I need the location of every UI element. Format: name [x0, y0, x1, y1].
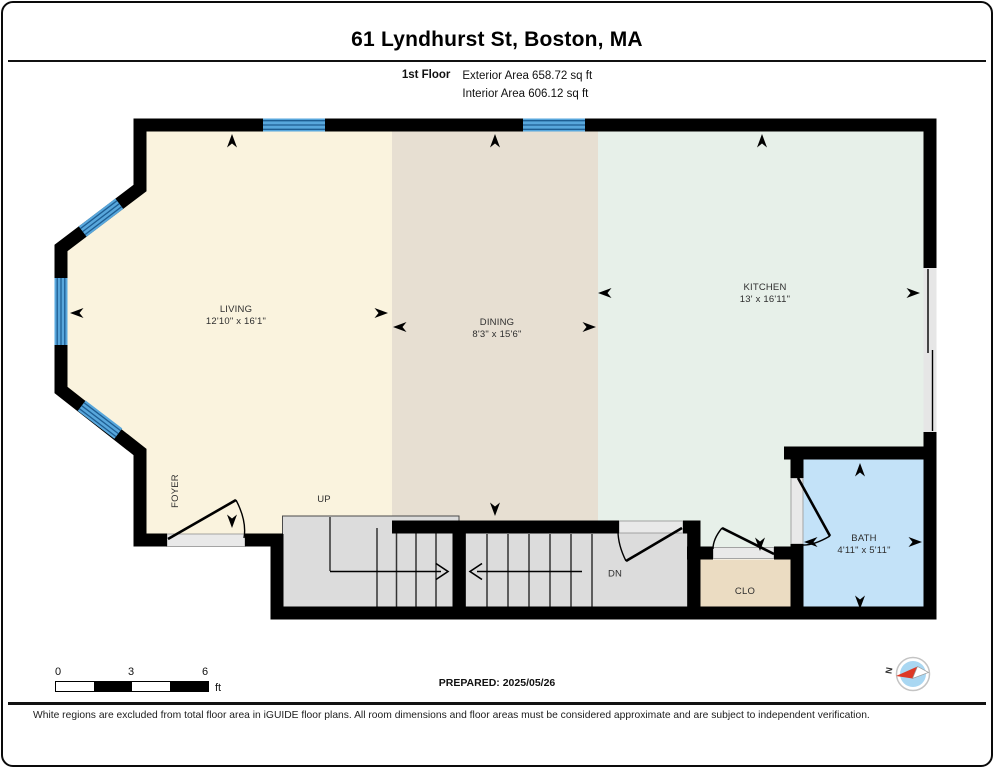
living-label: LIVING — [220, 304, 252, 315]
dining-dims: 8'3" x 15'6" — [472, 329, 521, 340]
bath-label: BATH — [851, 533, 876, 544]
bath-door-sill — [791, 478, 803, 544]
kitchen-label: KITCHEN — [743, 282, 786, 293]
footer-divider — [8, 702, 986, 705]
bath-dims: 4'11" x 5'11" — [837, 545, 890, 556]
bay-window-middle — [57, 278, 65, 345]
compass-north-label: N — [884, 666, 895, 674]
dining-label: DINING — [480, 317, 514, 328]
floor-plan: LIVING 12'10" x 16'1" DINING 8'3" x 15'6… — [0, 0, 994, 768]
stairs-down-area — [466, 527, 688, 613]
up-label: UP — [317, 494, 331, 505]
down-label: DN — [608, 569, 622, 580]
window-top-1 — [263, 121, 325, 130]
entry-door-sill — [167, 534, 245, 547]
sliding-door — [924, 268, 937, 432]
closet-floor — [701, 560, 791, 607]
prepared-date: PREPARED: 2025/05/26 — [0, 677, 994, 689]
window-top-2 — [523, 121, 585, 130]
disclaimer-text: White regions are excluded from total fl… — [33, 710, 953, 721]
stairwell-door-sill — [619, 521, 683, 533]
kitchen-dims: 13' x 16'11" — [740, 294, 790, 305]
living-dims: 12'10" x 16'1" — [206, 316, 266, 327]
closet-label: CLO — [735, 586, 755, 597]
foyer-label: FOYER — [170, 474, 181, 508]
